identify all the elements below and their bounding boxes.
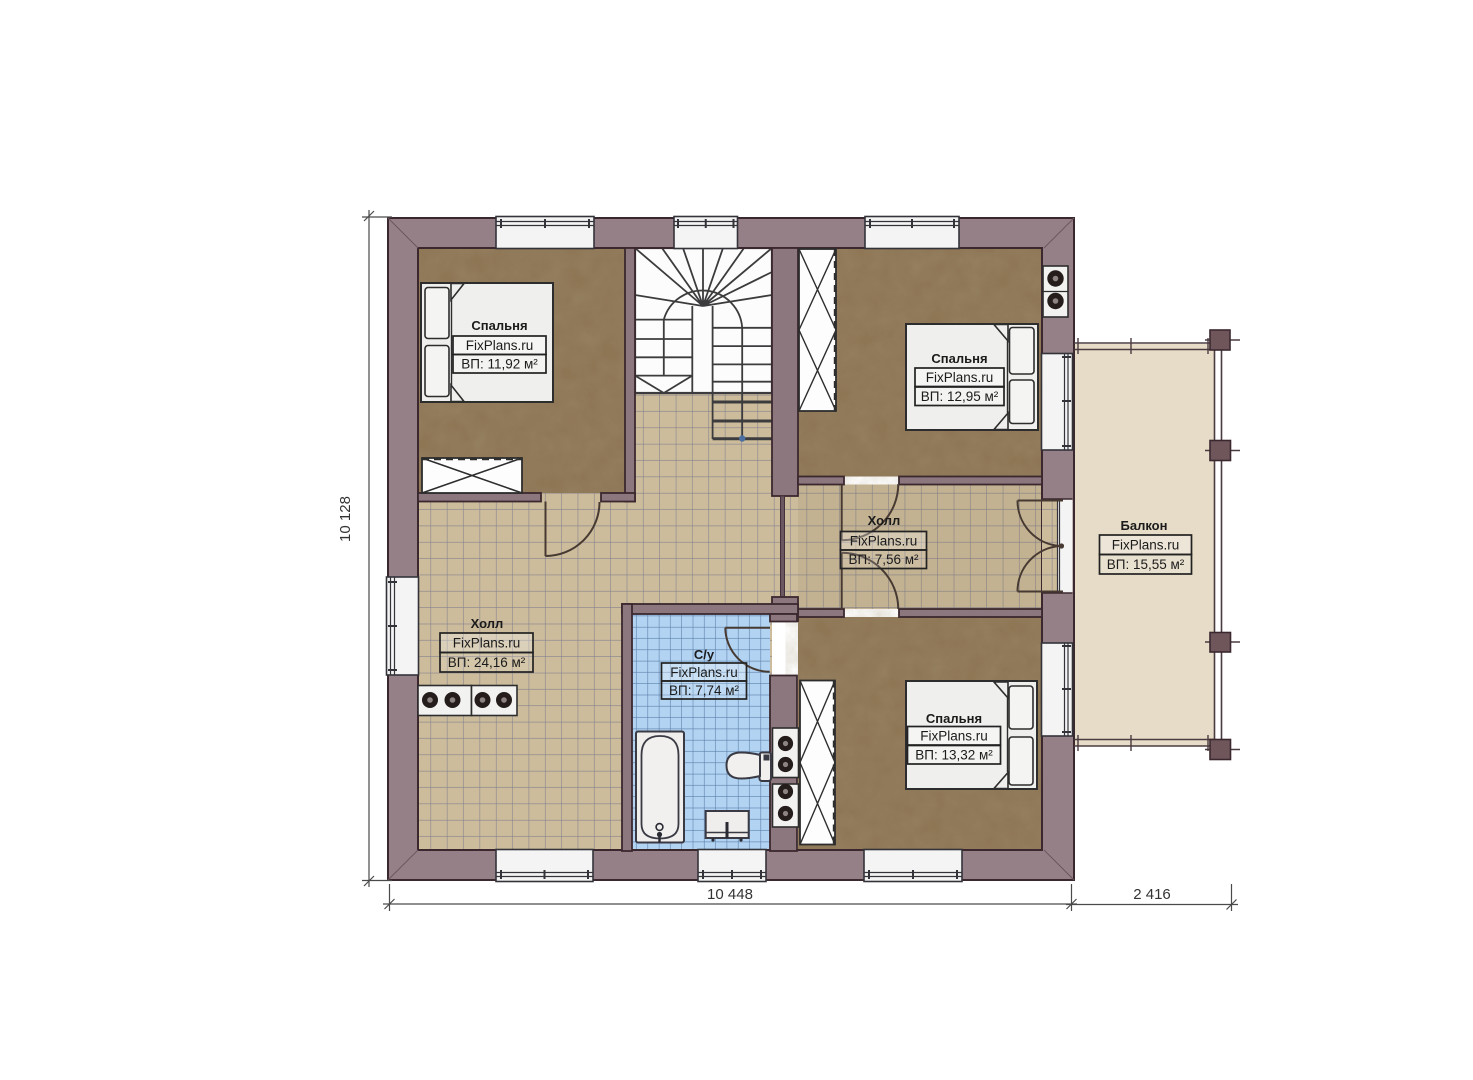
svg-text:FixPlans.ru: FixPlans.ru (1112, 538, 1180, 553)
svg-text:ВП: 15,55 м²: ВП: 15,55 м² (1107, 557, 1185, 572)
svg-text:FixPlans.ru: FixPlans.ru (670, 665, 738, 680)
svg-text:ВП: 12,95 м²: ВП: 12,95 м² (921, 389, 999, 404)
svg-text:Холл: Холл (868, 513, 901, 528)
svg-text:FixPlans.ru: FixPlans.ru (453, 636, 521, 651)
svg-text:Спальня: Спальня (471, 318, 527, 333)
svg-text:10 128: 10 128 (337, 496, 354, 542)
svg-text:Спальня: Спальня (931, 351, 987, 366)
svg-text:Холл: Холл (471, 616, 504, 631)
svg-text:FixPlans.ru: FixPlans.ru (466, 338, 534, 353)
svg-text:10 448: 10 448 (707, 886, 753, 903)
svg-text:FixPlans.ru: FixPlans.ru (926, 370, 994, 385)
svg-text:Спальня: Спальня (926, 711, 982, 726)
svg-text:ВП: 13,32 м²: ВП: 13,32 м² (915, 748, 993, 763)
svg-text:Балкон: Балкон (1121, 518, 1168, 533)
svg-text:FixPlans.ru: FixPlans.ru (850, 534, 918, 549)
svg-text:ВП: 7,56 м²: ВП: 7,56 м² (848, 552, 919, 567)
svg-text:С/у: С/у (694, 647, 715, 662)
svg-text:ВП: 7,74 м²: ВП: 7,74 м² (669, 683, 740, 698)
svg-text:FixPlans.ru: FixPlans.ru (920, 729, 988, 744)
svg-text:2 416: 2 416 (1133, 886, 1171, 903)
svg-text:ВП: 24,16 м²: ВП: 24,16 м² (448, 655, 526, 670)
svg-text:ВП: 11,92 м²: ВП: 11,92 м² (461, 357, 538, 372)
